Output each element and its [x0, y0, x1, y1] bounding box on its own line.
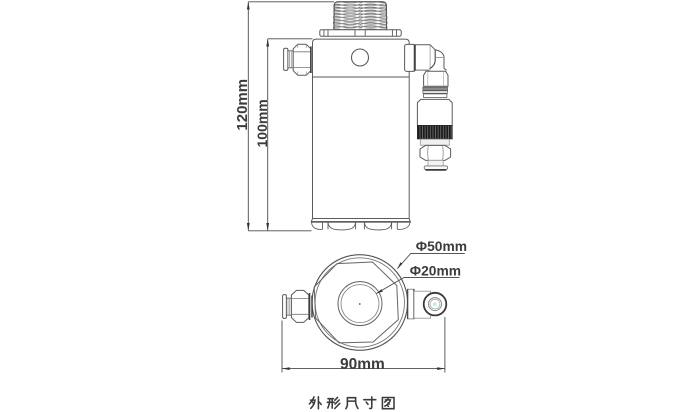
svg-text:Φ50mm: Φ50mm	[416, 239, 467, 254]
svg-text:Φ20mm: Φ20mm	[410, 264, 461, 279]
svg-text:90mm: 90mm	[340, 356, 385, 373]
svg-text:100mm: 100mm	[254, 99, 270, 147]
svg-text:120mm: 120mm	[234, 79, 251, 131]
